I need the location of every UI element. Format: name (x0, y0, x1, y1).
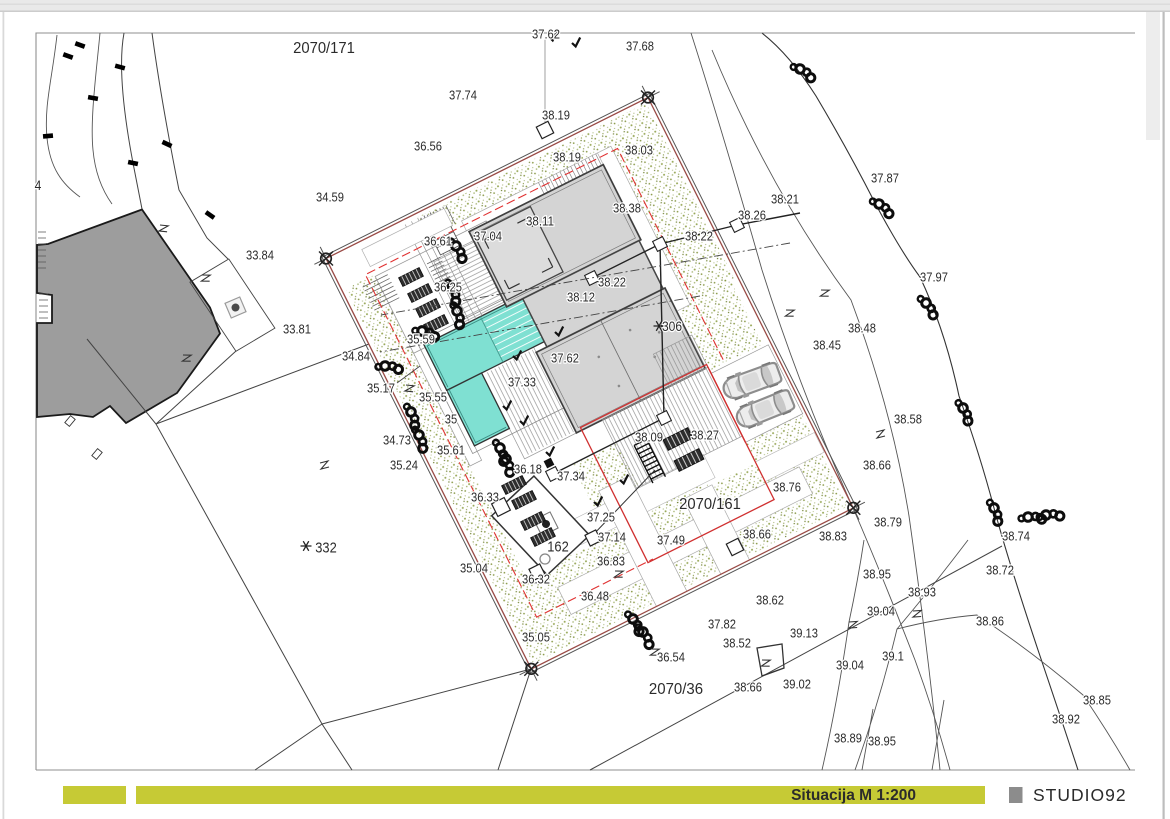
svg-text:38.74: 38.74 (1002, 529, 1030, 544)
svg-text:36.33: 36.33 (471, 490, 499, 505)
svg-text:Situacija M 1:200: Situacija M 1:200 (791, 787, 916, 804)
svg-text:38.85: 38.85 (1083, 693, 1111, 708)
svg-text:34.84: 34.84 (342, 349, 370, 364)
svg-text:33.81: 33.81 (283, 322, 311, 337)
svg-text:39.1: 39.1 (882, 649, 904, 664)
svg-text:37.97: 37.97 (920, 270, 948, 285)
svg-text:38.21: 38.21 (771, 192, 799, 207)
svg-text:35.55: 35.55 (419, 390, 447, 405)
svg-text:38.72: 38.72 (986, 563, 1014, 578)
svg-text:38.11: 38.11 (526, 214, 554, 229)
svg-text:2070/161: 2070/161 (679, 496, 741, 513)
svg-text:37.74: 37.74 (449, 88, 477, 103)
svg-text:38.19: 38.19 (553, 150, 581, 165)
svg-text:38.95: 38.95 (863, 567, 891, 582)
svg-text:37.25: 37.25 (587, 510, 615, 525)
svg-text:36.32: 36.32 (522, 572, 550, 587)
svg-text:37.82: 37.82 (708, 617, 736, 632)
svg-text:36.25: 36.25 (434, 280, 462, 295)
svg-text:37.04: 37.04 (474, 229, 502, 244)
svg-text:37.33: 37.33 (508, 375, 536, 390)
svg-text:38.66: 38.66 (743, 527, 771, 542)
svg-text:39.04: 39.04 (836, 658, 864, 673)
svg-text:38.52: 38.52 (723, 636, 751, 651)
svg-text:306: 306 (662, 318, 682, 334)
svg-text:38.38: 38.38 (613, 201, 641, 216)
svg-text:38.58: 38.58 (894, 412, 922, 427)
svg-text:39.13: 39.13 (790, 626, 818, 641)
svg-text:39.04: 39.04 (867, 604, 895, 619)
svg-text:37.14: 37.14 (598, 530, 626, 545)
svg-text:4: 4 (35, 177, 42, 193)
svg-text:STUDIO92: STUDIO92 (1033, 785, 1127, 805)
svg-text:38.12: 38.12 (567, 290, 595, 305)
svg-text:35: 35 (445, 412, 457, 427)
svg-text:36.83: 36.83 (597, 554, 625, 569)
svg-text:38.09: 38.09 (635, 430, 663, 445)
svg-text:38.93: 38.93 (908, 585, 936, 600)
svg-text:35.61: 35.61 (437, 443, 465, 458)
svg-text:37.34: 37.34 (557, 469, 585, 484)
svg-text:38.22: 38.22 (598, 275, 626, 290)
svg-text:38.79: 38.79 (874, 515, 902, 530)
svg-text:35.04: 35.04 (460, 561, 488, 576)
svg-text:38.45: 38.45 (813, 338, 841, 353)
svg-text:36.18: 36.18 (514, 462, 542, 477)
svg-text:38.66: 38.66 (734, 680, 762, 695)
svg-text:39.02: 39.02 (783, 677, 811, 692)
svg-text:38.48: 38.48 (848, 321, 876, 336)
svg-text:38.92: 38.92 (1052, 712, 1080, 727)
svg-text:34.73: 34.73 (383, 433, 411, 448)
svg-text:34.59: 34.59 (316, 190, 344, 205)
svg-text:38.03: 38.03 (625, 143, 653, 158)
svg-text:38.89: 38.89 (834, 731, 862, 746)
svg-text:33.84: 33.84 (246, 248, 274, 263)
svg-text:38.83: 38.83 (819, 529, 847, 544)
svg-text:38.19: 38.19 (542, 108, 570, 123)
svg-text:2070/171: 2070/171 (293, 40, 355, 57)
svg-text:35.59: 35.59 (407, 332, 435, 347)
svg-text:37.68: 37.68 (626, 39, 654, 54)
svg-text:162: 162 (547, 538, 569, 555)
svg-text:332: 332 (315, 539, 337, 556)
svg-text:38.66: 38.66 (863, 458, 891, 473)
svg-text:38.27: 38.27 (691, 428, 719, 443)
svg-text:36.61: 36.61 (424, 234, 452, 249)
svg-text:38.76: 38.76 (773, 480, 801, 495)
svg-text:2070/36: 2070/36 (649, 681, 703, 698)
svg-text:36.48: 36.48 (581, 589, 609, 604)
svg-text:37.49: 37.49 (657, 533, 685, 548)
svg-text:35.05: 35.05 (522, 630, 550, 645)
svg-text:38.26: 38.26 (738, 208, 766, 223)
svg-text:38.62: 38.62 (756, 593, 784, 608)
svg-text:37.62: 37.62 (532, 27, 560, 42)
svg-text:37.62: 37.62 (551, 351, 579, 366)
svg-text:38.86: 38.86 (976, 614, 1004, 629)
svg-text:36.56: 36.56 (414, 139, 442, 154)
svg-text:35.24: 35.24 (390, 458, 418, 473)
svg-text:37.87: 37.87 (871, 171, 899, 186)
svg-text:35.17: 35.17 (367, 381, 395, 396)
svg-text:38.95: 38.95 (868, 734, 896, 749)
svg-text:36.54: 36.54 (657, 650, 685, 665)
svg-text:38.22: 38.22 (685, 229, 713, 244)
